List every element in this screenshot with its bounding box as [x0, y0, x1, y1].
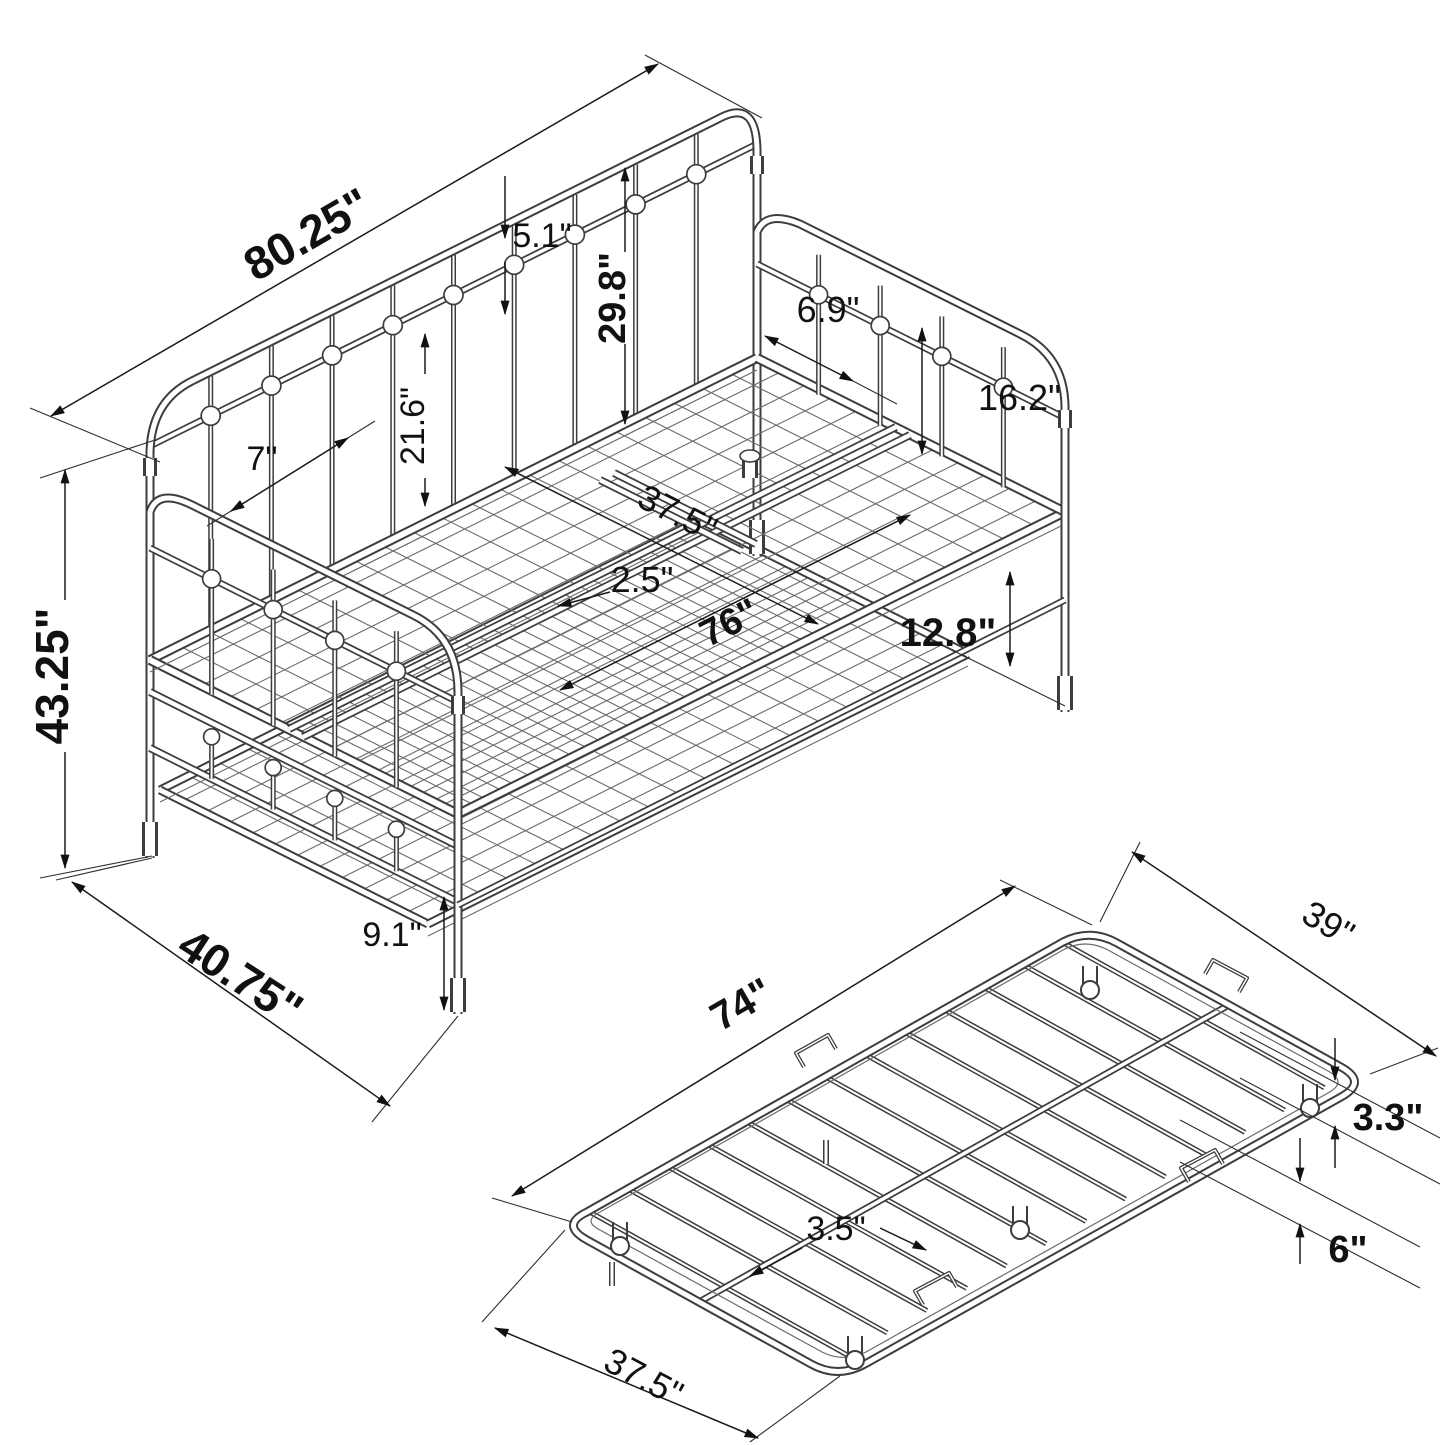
ball-finial: [387, 662, 405, 680]
caster-wheel: [846, 1351, 864, 1369]
extension-line: [492, 1198, 572, 1222]
caster-wheel: [1301, 1099, 1319, 1117]
dim-frame-height-label: 3.3": [1353, 1097, 1424, 1139]
trundle-slat: [825, 1077, 1086, 1222]
dim-overall-height-label: 43.25": [26, 608, 78, 745]
extension-line: [482, 1230, 565, 1322]
extension-line: [372, 1016, 458, 1122]
ball-finial: [444, 286, 463, 305]
ball-finial: [388, 821, 404, 837]
extension-line: [1370, 1048, 1438, 1074]
ball-finial: [264, 601, 282, 619]
caster-wheel: [1011, 1221, 1029, 1239]
dim-overall-depth-label: 40.75": [169, 917, 312, 1035]
dim-overall-length-label: 80.25": [235, 177, 380, 290]
extension-line: [645, 55, 762, 118]
ball-finial: [327, 790, 343, 806]
ball-finial: [626, 195, 645, 214]
extension-line: [40, 440, 155, 478]
ball-finial: [383, 316, 402, 335]
ball-finial: [326, 631, 344, 649]
trundle-frame: [574, 935, 1355, 1371]
trundle-slat: [746, 1121, 1007, 1266]
dim-line-arm-spindle-spacing: [765, 336, 853, 381]
extension-line: [40, 856, 152, 878]
dim-arm-spindle-spacing-label: 6.9": [797, 289, 860, 330]
trundle-handle: [1205, 960, 1247, 992]
extension-line: [853, 381, 897, 404]
dim-line-trundle-length: [512, 886, 1015, 1196]
dim-trundle-width-label: 39": [1295, 892, 1361, 954]
trundle-slat: [1064, 943, 1325, 1088]
dim-post-spacing-label: 7": [247, 440, 278, 478]
ball-finial: [505, 255, 524, 274]
dim-line-trundle-width: [1132, 852, 1436, 1056]
trundle-slat: [666, 1166, 927, 1311]
deck-edge: [458, 524, 1065, 826]
trundle-slat: [984, 987, 1245, 1132]
caster-wheel: [1081, 981, 1099, 999]
trundle-handle: [915, 1273, 957, 1305]
ball-finial: [933, 347, 951, 365]
mesh-line: [383, 632, 923, 902]
trundle-slat: [905, 1032, 1166, 1177]
dim-lower-rail-height-label: 9.1": [362, 916, 421, 954]
extension-line: [56, 858, 152, 880]
dim-back-rail-gap-label: 5.1": [512, 217, 571, 255]
dim-slat-spacing-label: 3.5": [806, 1210, 865, 1248]
ball-finial: [265, 760, 281, 776]
diagram-page: 80.25" 5.1" 29.8" 6.9" 16.2" 7" 21.6" 37…: [0, 0, 1445, 1445]
dim-caster-clearance-label: 6": [1328, 1229, 1367, 1271]
trundle-slat: [865, 1054, 1126, 1199]
ball-finial: [201, 406, 220, 425]
deck-cup-top: [740, 450, 760, 462]
dim-trundle-end-width-label: 37.5": [598, 1339, 690, 1414]
dim-spindle-height-label: 21.6": [394, 387, 432, 465]
dim-deck-clearance-label: 12.8": [900, 611, 997, 655]
trundle-slat: [1024, 965, 1285, 1110]
ball-finial: [203, 570, 221, 588]
dim-arm-height-label: 16.2": [978, 377, 1061, 418]
trundle-center-rail: [699, 1005, 1229, 1302]
dim-trundle-length-label: 74": [703, 970, 780, 1040]
ball-finial: [262, 376, 281, 395]
ball-finial: [204, 729, 220, 745]
deck-support-rail: [289, 427, 896, 729]
ball-finial: [687, 165, 706, 184]
daybed-trundle-dimension-diagram: 80.25" 5.1" 29.8" 6.9" 16.2" 7" 21.6" 37…: [0, 0, 1445, 1445]
dim-support-rail-gap-label: 2.5": [611, 559, 674, 600]
caster-wheel: [611, 1237, 629, 1255]
ball-finial: [323, 346, 342, 365]
dim-back-height-label: 29.8": [592, 252, 634, 344]
extension-line: [750, 1376, 840, 1442]
trundle-slat: [944, 1010, 1205, 1155]
mesh-line: [406, 643, 946, 913]
extension-line: [30, 408, 160, 462]
ball-finial: [871, 317, 889, 335]
extension-line: [952, 650, 1065, 706]
dim-deck-length-label: 76": [693, 591, 766, 656]
